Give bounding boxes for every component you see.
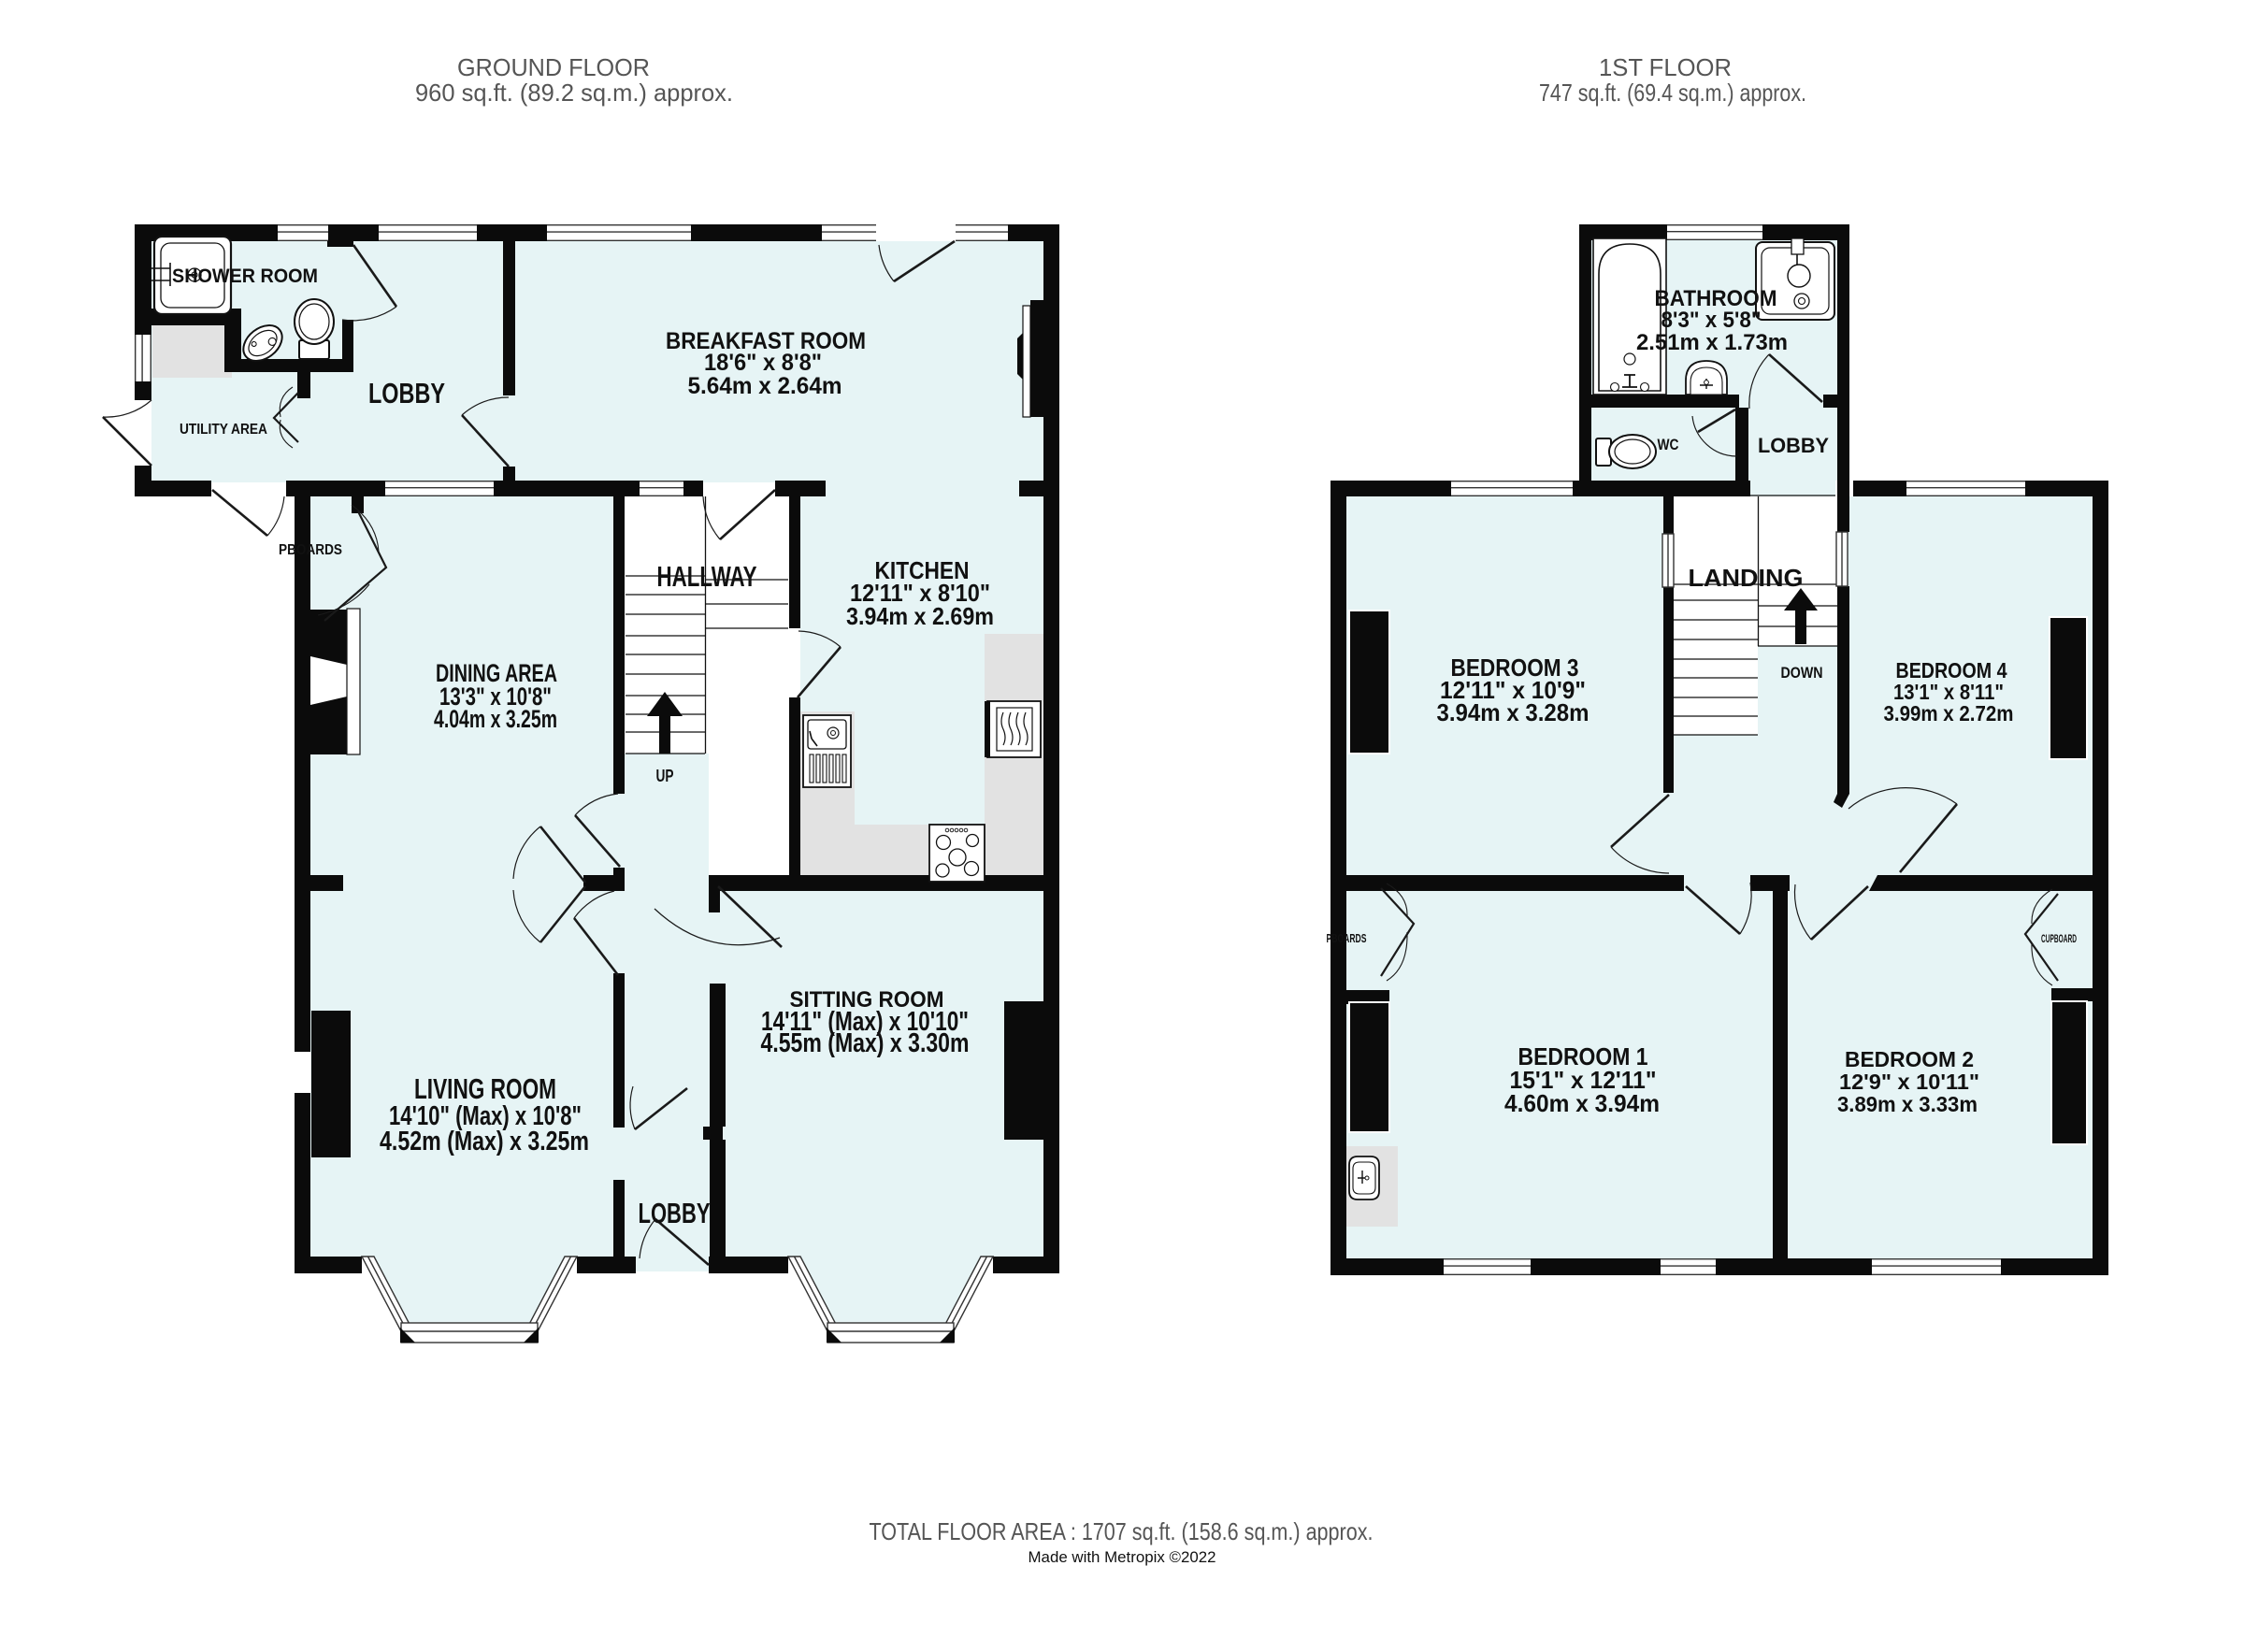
svg-text:WC: WC: [1658, 437, 1679, 453]
svg-text:DOWN: DOWN: [1781, 664, 1823, 682]
svg-text:4.52m (Max) x 3.25m: 4.52m (Max) x 3.25m: [380, 1127, 589, 1156]
svg-text:LOBBY: LOBBY: [639, 1197, 711, 1229]
svg-text:4.60m x 3.94m: 4.60m x 3.94m: [1504, 1089, 1660, 1117]
svg-text:4.55m (Max) x 3.30m: 4.55m (Max) x 3.30m: [761, 1028, 970, 1058]
svg-text:PBOARDS: PBOARDS: [279, 542, 342, 558]
svg-text:GROUND FLOOR: GROUND FLOOR: [457, 53, 650, 81]
svg-text:TOTAL FLOOR AREA : 1707 sq.ft.: TOTAL FLOOR AREA : 1707 sq.ft. (158.6 sq…: [870, 1517, 1374, 1545]
svg-text:3.99m x 2.72m: 3.99m x 2.72m: [1884, 701, 2014, 725]
svg-text:LOBBY: LOBBY: [368, 377, 445, 409]
svg-text:960 sq.ft. (89.2 sq.m.) approx: 960 sq.ft. (89.2 sq.m.) approx.: [415, 79, 733, 107]
svg-text:LIVING ROOM: LIVING ROOM: [414, 1072, 556, 1105]
svg-text:18'6" x 8'8": 18'6" x 8'8": [704, 350, 822, 376]
svg-text:3.94m x 2.69m: 3.94m x 2.69m: [846, 602, 994, 630]
svg-text:UP: UP: [656, 767, 674, 785]
svg-text:BEDROOM 2: BEDROOM 2: [1845, 1047, 1974, 1071]
svg-text:3.94m x 3.28m: 3.94m x 3.28m: [1437, 698, 1589, 726]
svg-text:LANDING: LANDING: [1689, 564, 1804, 592]
svg-text:3.89m x 3.33m: 3.89m x 3.33m: [1837, 1092, 1978, 1116]
svg-text:5.64m x 2.64m: 5.64m x 2.64m: [688, 373, 842, 399]
svg-text:747 sq.ft. (69.4 sq.m.) approx: 747 sq.ft. (69.4 sq.m.) approx.: [1539, 79, 1806, 107]
svg-text:HALLWAY: HALLWAY: [657, 560, 757, 593]
svg-text:12'9" x 10'11": 12'9" x 10'11": [1839, 1070, 1979, 1094]
svg-text:Made with Metropix ©2022: Made with Metropix ©2022: [1028, 1548, 1216, 1566]
svg-text:4.04m x 3.25m: 4.04m x 3.25m: [434, 705, 557, 733]
svg-text:CUPBOARD: CUPBOARD: [2041, 932, 2077, 945]
svg-text:PBOARDS: PBOARDS: [1327, 932, 1367, 945]
svg-text:8'3" x 5'8": 8'3" x 5'8": [1661, 308, 1762, 333]
svg-text:1ST FLOOR: 1ST FLOOR: [1599, 53, 1732, 81]
svg-text:SHOWER ROOM: SHOWER ROOM: [172, 266, 318, 287]
svg-text:LOBBY: LOBBY: [1758, 434, 1829, 457]
svg-text:UTILITY AREA: UTILITY AREA: [180, 422, 267, 438]
svg-text:2.51m x 1.73m: 2.51m x 1.73m: [1636, 330, 1788, 355]
